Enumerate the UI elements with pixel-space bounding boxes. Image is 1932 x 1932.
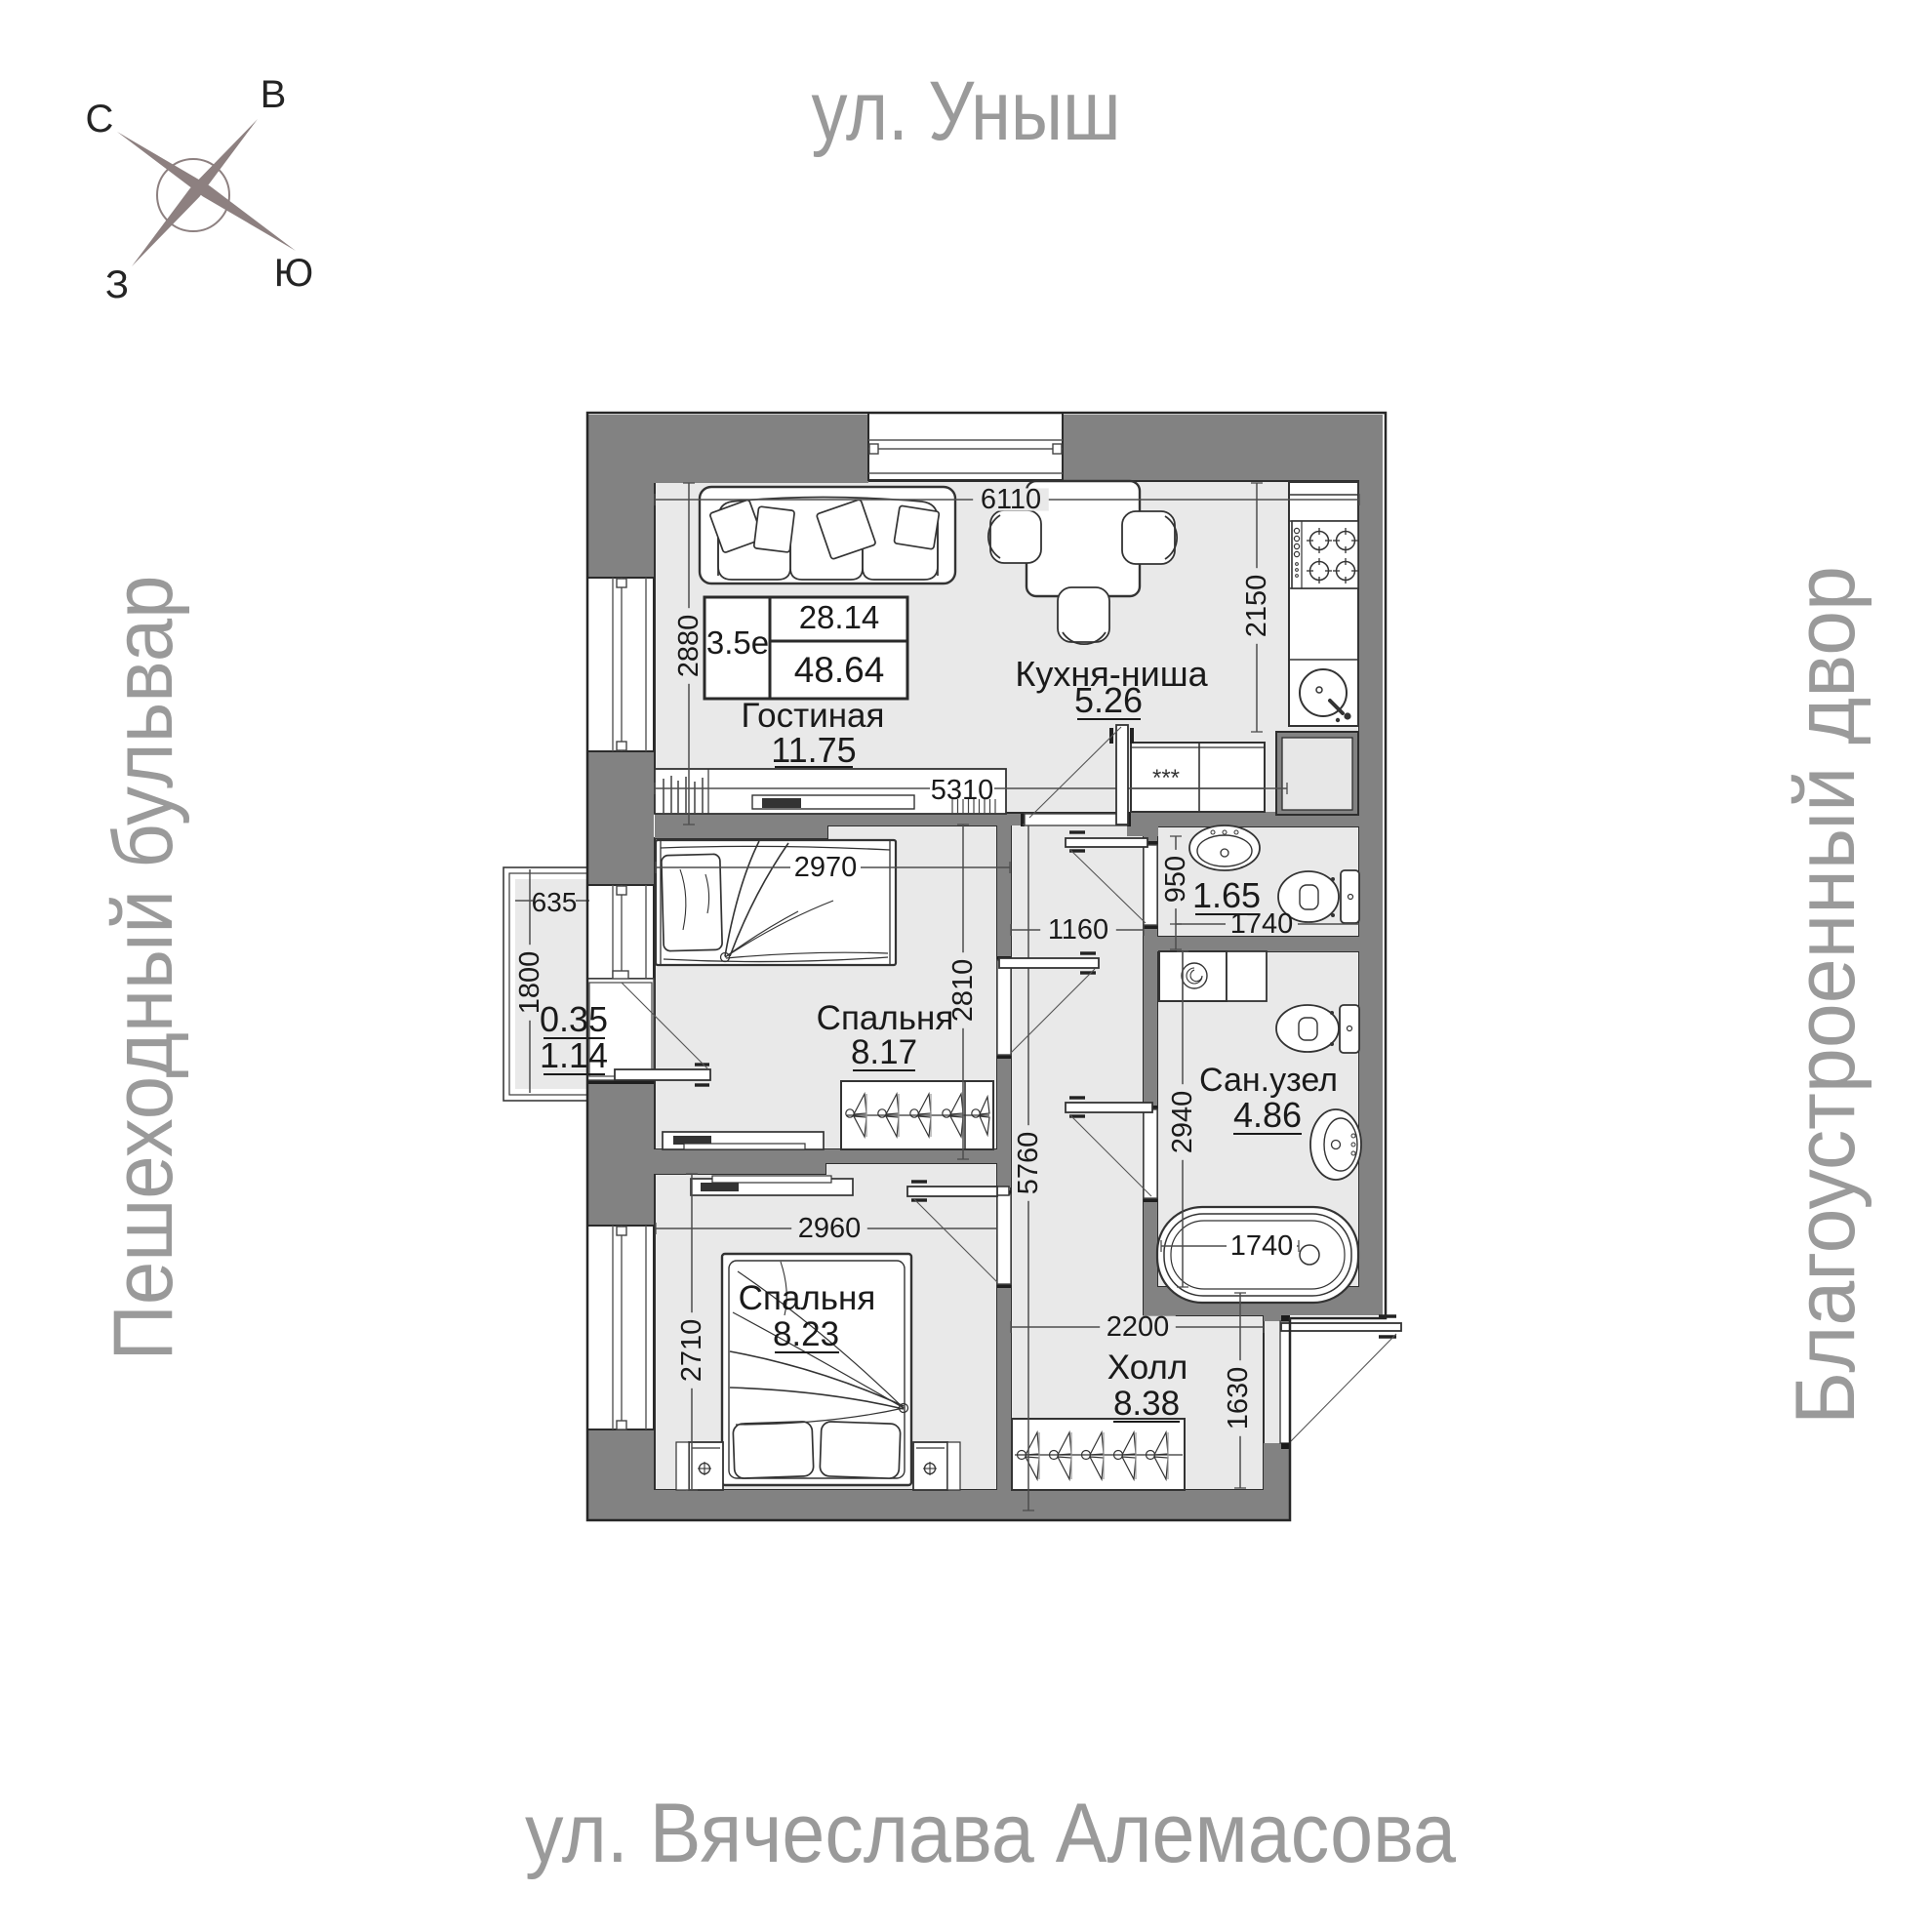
svg-text:5760: 5760: [1013, 1132, 1044, 1195]
svg-text:8.23: 8.23: [773, 1315, 839, 1353]
svg-text:2960: 2960: [798, 1213, 862, 1244]
svg-text:8.17: 8.17: [851, 1033, 917, 1071]
svg-text:Сан.узел: Сан.узел: [1199, 1062, 1338, 1099]
svg-text:2710: 2710: [676, 1319, 707, 1383]
svg-text:11.75: 11.75: [771, 730, 856, 770]
svg-text:8.38: 8.38: [1113, 1385, 1180, 1423]
svg-text:3.5е: 3.5е: [706, 624, 769, 661]
svg-text:Пешеходный бульвар: Пешеходный бульвар: [97, 576, 190, 1361]
svg-text:Благоустроенный двор: Благоустроенный двор: [1779, 566, 1872, 1425]
svg-text:1740: 1740: [1230, 1230, 1294, 1262]
svg-text:Ю: Ю: [274, 252, 313, 295]
svg-text:Холл: Холл: [1107, 1348, 1188, 1387]
svg-text:ул. Вячеслава Алемасова: ул. Вячеслава Алемасова: [525, 1787, 1456, 1880]
svg-text:2940: 2940: [1167, 1091, 1198, 1154]
svg-text:В: В: [261, 73, 287, 116]
svg-text:***: ***: [1152, 765, 1180, 791]
svg-text:2970: 2970: [794, 852, 858, 883]
svg-text:Спальня: Спальня: [817, 999, 954, 1037]
svg-text:1.14: 1.14: [540, 1035, 608, 1075]
svg-text:4.86: 4.86: [1233, 1095, 1302, 1135]
svg-text:2200: 2200: [1107, 1311, 1170, 1343]
svg-text:635: 635: [532, 887, 578, 917]
svg-text:2880: 2880: [673, 615, 704, 678]
svg-text:С: С: [86, 98, 114, 141]
svg-text:2150: 2150: [1241, 575, 1272, 638]
svg-text:5310: 5310: [931, 775, 994, 806]
svg-text:950: 950: [1160, 856, 1191, 903]
svg-text:Спальня: Спальня: [739, 1279, 876, 1317]
svg-text:5.26: 5.26: [1074, 680, 1143, 720]
svg-text:48.64: 48.64: [794, 650, 885, 690]
svg-text:28.14: 28.14: [799, 599, 880, 635]
svg-text:1.65: 1.65: [1192, 875, 1261, 915]
svg-text:0.35: 0.35: [540, 999, 608, 1039]
svg-text:1160: 1160: [1048, 914, 1108, 946]
svg-text:ул. Уныш: ул. Уныш: [812, 64, 1121, 158]
svg-text:1630: 1630: [1223, 1367, 1254, 1430]
svg-text:6110: 6110: [981, 484, 1041, 515]
svg-text:З: З: [105, 263, 129, 306]
